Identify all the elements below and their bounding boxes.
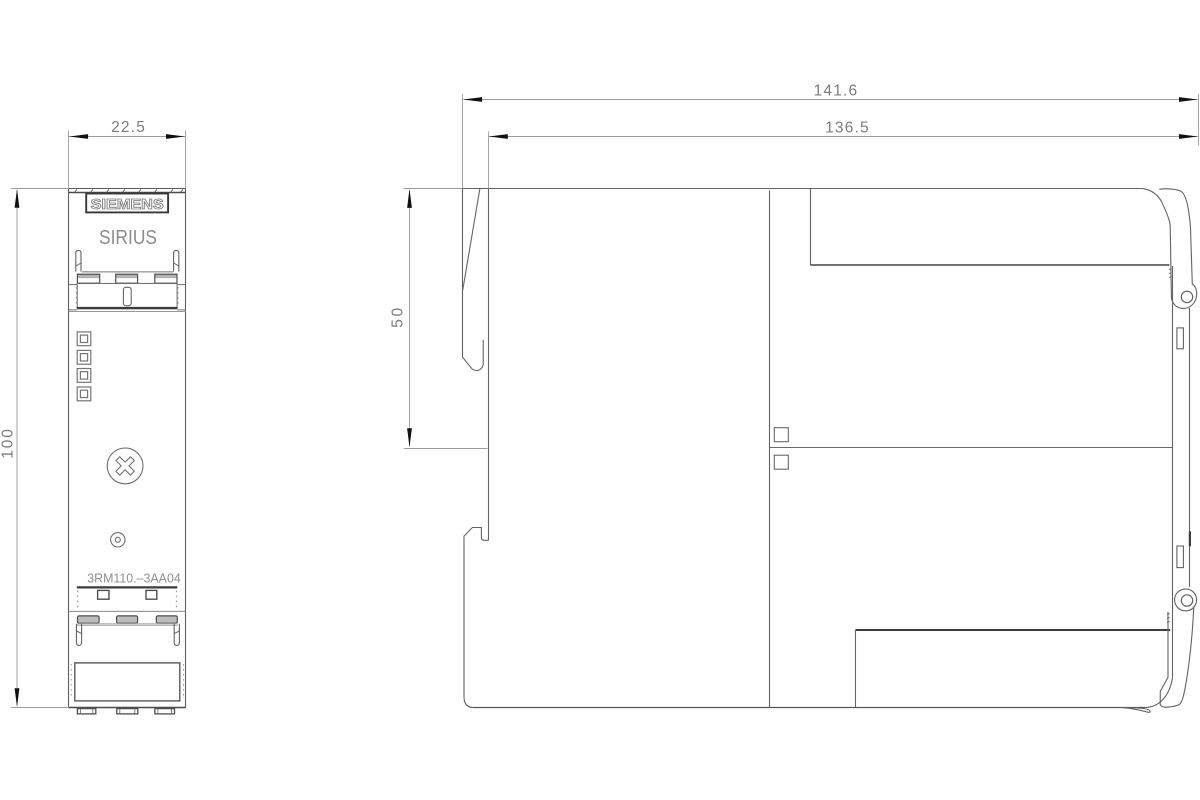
svg-text:SIEMENS: SIEMENS	[91, 196, 164, 213]
svg-text:3RM110.–3AA04: 3RM110.–3AA04	[87, 571, 181, 585]
svg-text:22.5: 22.5	[111, 119, 146, 136]
svg-text:SIRIUS: SIRIUS	[99, 227, 157, 249]
svg-text:50: 50	[390, 305, 407, 327]
svg-text:100: 100	[0, 427, 16, 458]
svg-text:136.5: 136.5	[825, 120, 870, 137]
svg-text:141.6: 141.6	[814, 83, 859, 100]
